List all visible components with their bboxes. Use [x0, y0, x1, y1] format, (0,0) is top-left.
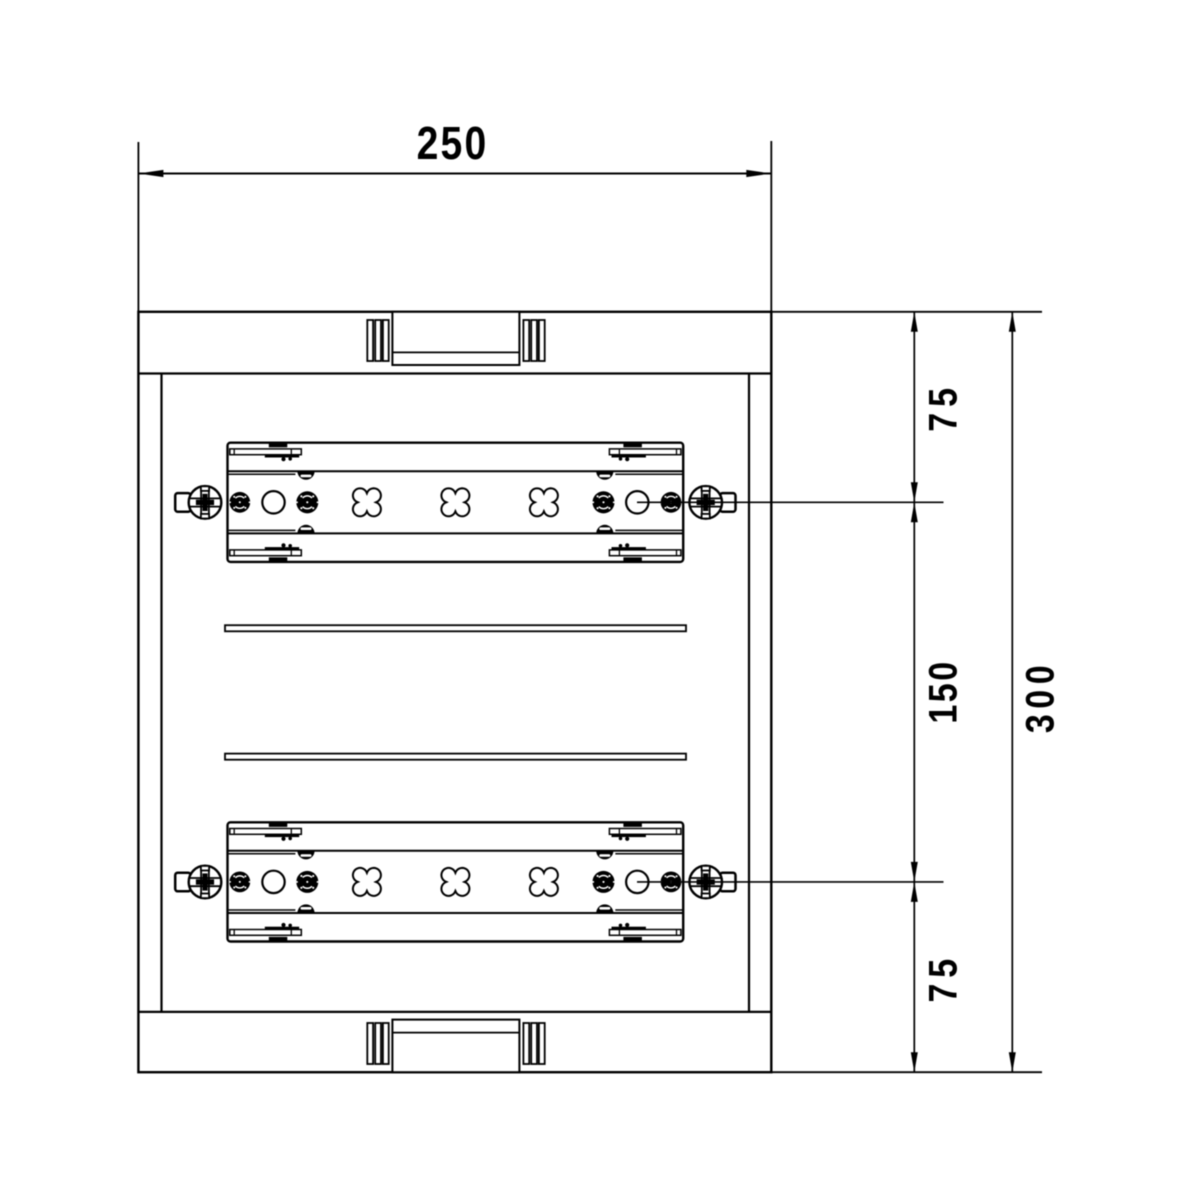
svg-text:250: 250 — [417, 118, 489, 170]
svg-text:75: 75 — [920, 953, 965, 1003]
svg-text:300: 300 — [1017, 660, 1062, 733]
svg-text:75: 75 — [920, 382, 965, 432]
svg-text:150: 150 — [920, 659, 965, 723]
